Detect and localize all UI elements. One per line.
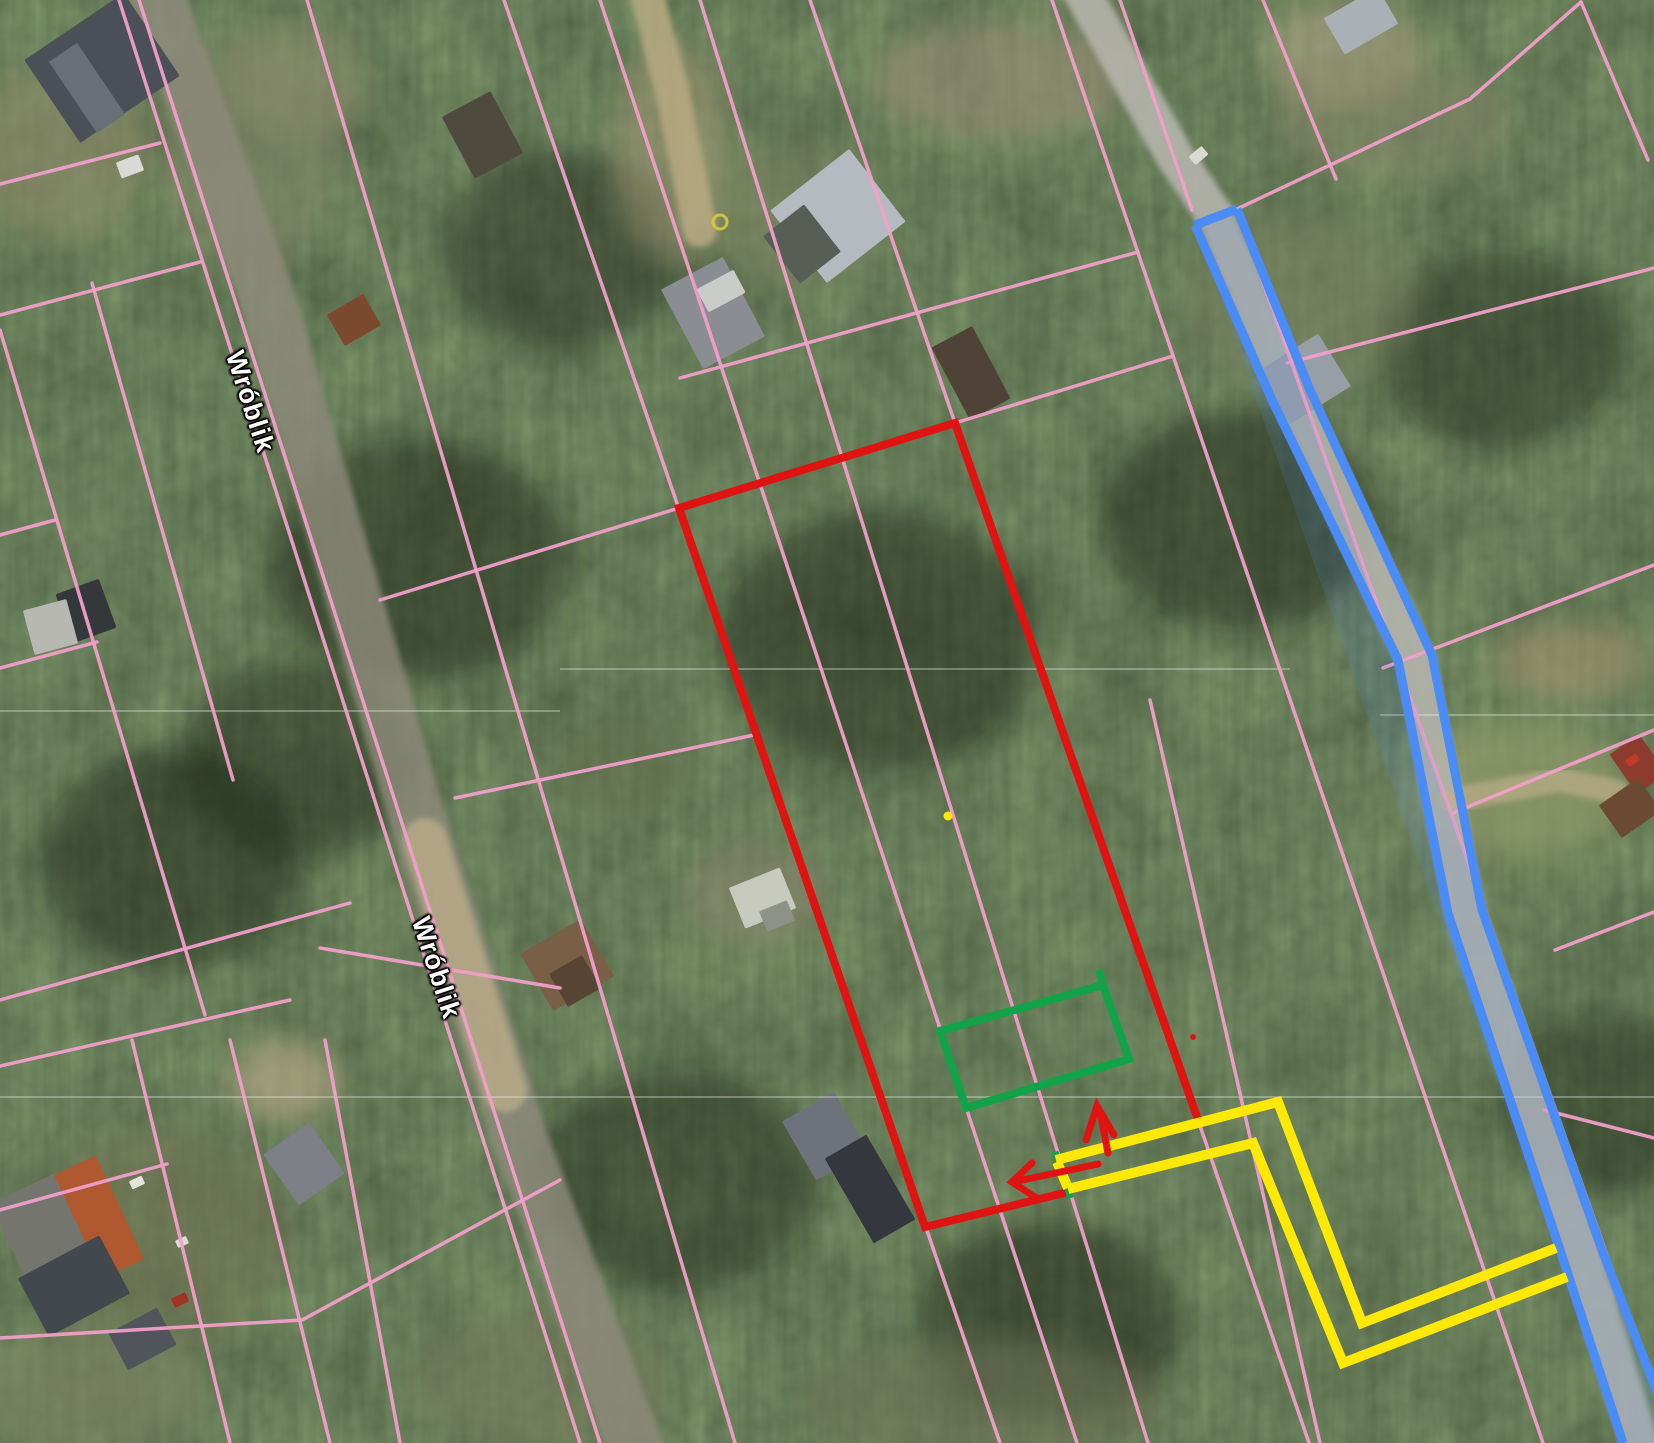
dark-canopy-patch	[720, 510, 1040, 770]
red-dot-marker	[1190, 1034, 1196, 1040]
clearing-patch	[1490, 620, 1650, 700]
clearing-patch	[1270, 60, 1510, 180]
clearing-patch	[230, 20, 370, 140]
satellite-map-view[interactable]: Wróblik Wróblik	[0, 0, 1654, 1443]
dark-canopy-patch	[40, 750, 300, 970]
clearing-patch	[550, 720, 690, 820]
map-canvas[interactable]	[0, 0, 1654, 1443]
green-rectangle-corner-stub	[1099, 970, 1103, 985]
yellow-dot-marker	[944, 812, 953, 821]
